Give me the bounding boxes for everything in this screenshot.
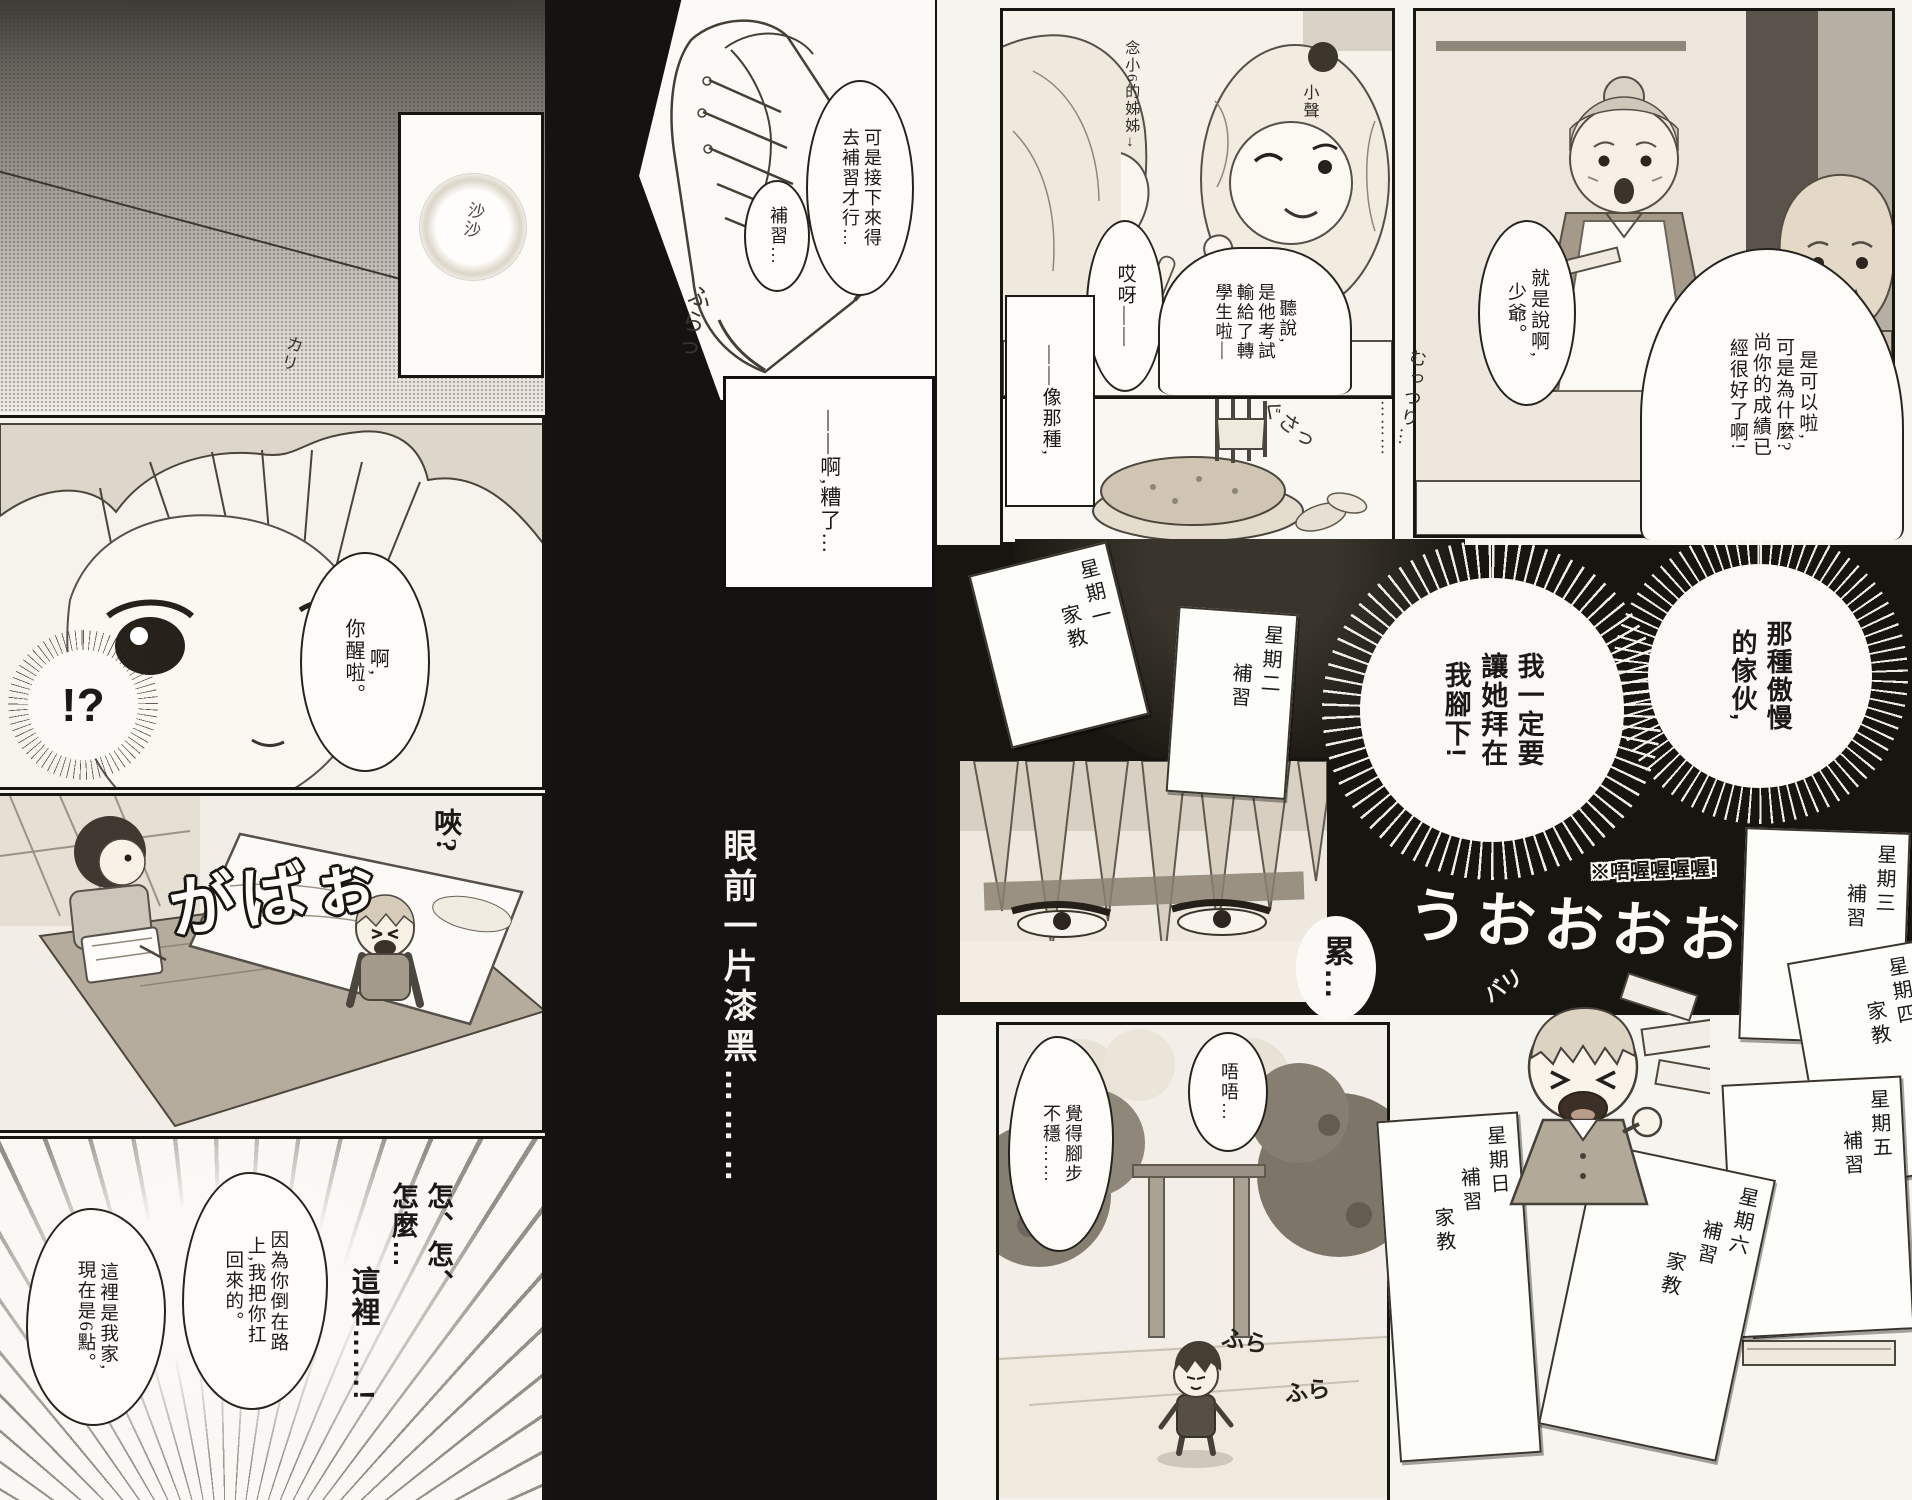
chibi-boy (1495, 972, 1710, 1217)
bubble-huh: 唊? (428, 808, 462, 908)
exclaim-burst: !? (28, 650, 138, 760)
panel-rustle: 沙沙 (398, 112, 544, 378)
exclaim-text: !? (61, 678, 104, 732)
bubble-ugh: 唔唔… (1188, 1032, 1268, 1152)
bubble-cram-short-text: 補習… (766, 206, 788, 266)
bubble-cram-school: 可是接下來得 去補習才行… (806, 80, 914, 296)
burst-arrogant: 那種傲慢 的傢伙, (1648, 564, 1872, 788)
box-oops: ——啊,糟了… (723, 376, 935, 590)
sfx-scratch: カリ (268, 332, 304, 395)
bubble-you-are-awake: 啊, 你醒啦。 (300, 552, 430, 772)
bubble-rumor-text: 聽說, 是他考試 輸給了轉 學生啦— (1212, 283, 1297, 361)
bubble-you-are-awake-text: 啊, 你醒啦。 (341, 618, 390, 706)
burst-arrogant-text: 那種傲慢 的傢伙, (1725, 620, 1795, 732)
sfx-note-translation: ※唔喔喔喔喔! (1590, 852, 1718, 885)
manga-spread: ——啊啊… 這聲音… カリ 沙沙 是鉛筆的聲音——… 啊, 你醒啦。 !? (0, 0, 1912, 1500)
bubble-cram-school-text: 可是接下來得 去補習才行… (838, 128, 882, 248)
bubble-thats-right: 就是說啊, 少爺。 (1478, 220, 1576, 406)
label-sixth-grade-sister: 念小6的姊姊→ (1122, 40, 1140, 200)
bubble-cram-short: 補習… (744, 180, 810, 292)
bubble-ugh-text: 唔唔… (1217, 1062, 1239, 1122)
bubble-unsteady-text: 覺得腳步 不穩…… (1039, 1104, 1083, 1184)
label-whisper: 小聲 (1299, 84, 1319, 146)
schedule-paper-tuesday: 星期二 補習 (1166, 606, 1299, 800)
bubble-my-home-text: 這裡是我家, 現在是6點。 (73, 1260, 118, 1374)
burst-vow-text: 我一定要 讓她拜在 我腳下! (1437, 652, 1546, 768)
bubble-oh-dear: 哎呀—— (1086, 220, 1164, 392)
bubble-rumor: 聽說, 是他考試 輸給了轉 學生啦— (1158, 247, 1352, 395)
bubble-thats-right-text: 就是說啊, 少爺。 (1504, 268, 1550, 359)
tired-blob: 累… (1296, 916, 1376, 1020)
bubble-carried-you-text: 因為你倒在路 上,我把你扛 回來的。 (221, 1230, 289, 1353)
where-text: 這裡……! (345, 1266, 380, 1402)
burst-vow: 我一定要 讓她拜在 我腳下! (1360, 578, 1624, 842)
bubble-oh-dear-text: 哎呀—— (1113, 264, 1136, 348)
caption-darkness: 眼前一片漆黑……… (716, 828, 757, 1228)
box-like-that-text: ——像那種, (1038, 345, 1061, 457)
sfx-tired-text: 累… (1317, 935, 1355, 1001)
stutter-text: 怎、怎、 怎麼… (385, 1182, 455, 1298)
pencil-line (0, 168, 444, 292)
box-like-that: ——像那種, (1005, 295, 1095, 507)
chibi-boy-art (1495, 972, 1710, 1217)
box-oops-text: ——啊,糟了… (816, 410, 842, 555)
bubble-mother-text: 是可以啦, 可是為什麼? 尚你的成績已 經很好了啊! (1726, 332, 1819, 458)
sfx-wobble-2: ふら (1282, 1369, 1332, 1409)
